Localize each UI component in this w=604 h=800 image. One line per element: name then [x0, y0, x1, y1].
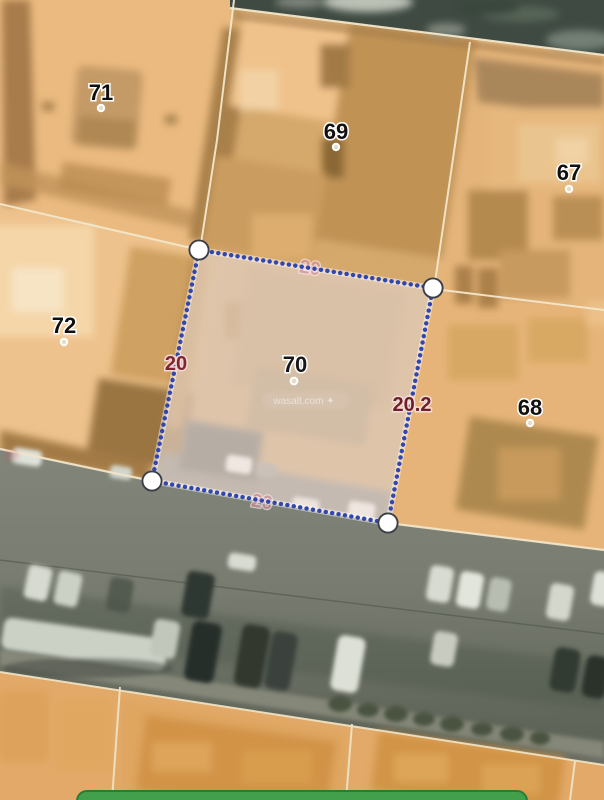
svg-text:20: 20 [4, 448, 18, 463]
svg-text:wasalt.com ✦: wasalt.com ✦ [272, 396, 334, 407]
svg-text:70: 70 [283, 352, 307, 377]
svg-text:69: 69 [324, 119, 348, 144]
svg-text:20: 20 [165, 353, 187, 375]
svg-text:67: 67 [557, 160, 581, 185]
svg-text:20.2: 20.2 [393, 394, 432, 416]
svg-text:72: 72 [52, 313, 76, 338]
svg-text:71: 71 [89, 80, 113, 105]
svg-text:68: 68 [518, 395, 542, 420]
